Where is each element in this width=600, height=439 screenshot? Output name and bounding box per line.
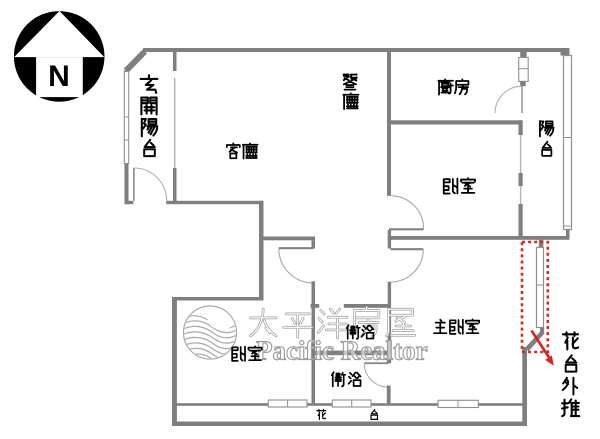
svg-text:Pacific Realtor: Pacific Realtor <box>256 336 428 366</box>
svg-text:N: N <box>48 60 70 93</box>
